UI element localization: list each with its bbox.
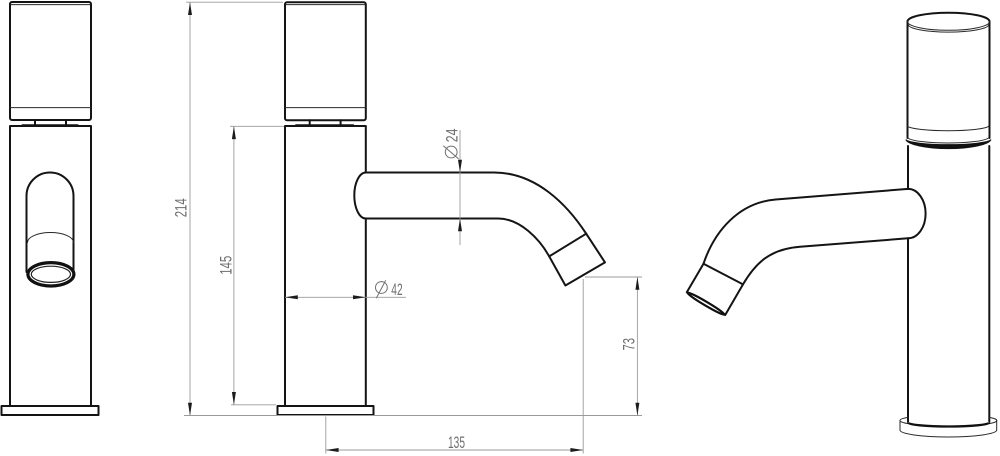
- svg-text:24: 24: [443, 129, 461, 143]
- svg-text:214: 214: [172, 198, 190, 217]
- svg-text:42: 42: [391, 281, 402, 299]
- svg-text:135: 135: [448, 434, 465, 452]
- svg-text:73: 73: [621, 338, 639, 351]
- svg-text:145: 145: [218, 256, 236, 275]
